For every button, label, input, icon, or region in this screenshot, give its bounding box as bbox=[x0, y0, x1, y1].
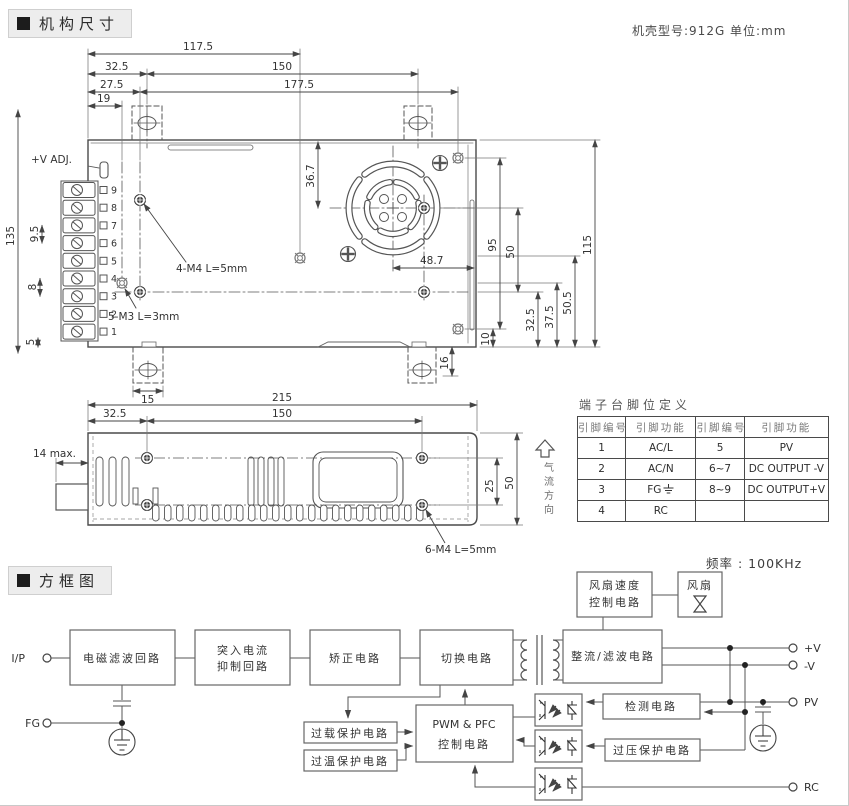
table-header-row: 引脚编号 引脚功能 引脚编号 引脚功能 bbox=[578, 417, 829, 438]
section-header-mechanical: 机构尺寸 bbox=[8, 9, 132, 38]
pin-label: 6 bbox=[111, 239, 117, 250]
block-label-overtemp: 过温保护电路 bbox=[311, 754, 389, 768]
pin-label: 4 bbox=[111, 274, 117, 285]
dim: 32.5 bbox=[103, 408, 126, 420]
col-header: 引脚功能 bbox=[626, 417, 696, 438]
col-header: 引脚编号 bbox=[696, 417, 744, 438]
cell-func: DC OUTPUT+V bbox=[744, 480, 828, 501]
dim: 27.5 bbox=[100, 79, 123, 91]
cell-func: AC/L bbox=[626, 438, 696, 459]
cell-func: RC bbox=[626, 501, 696, 522]
dim: 36.7 bbox=[305, 164, 317, 187]
dim: 16 bbox=[439, 356, 451, 370]
block-label-pwm2: 控制电路 bbox=[438, 737, 490, 751]
cell-pin: 2 bbox=[578, 459, 626, 480]
block-label-rectify: 矫正电路 bbox=[329, 652, 381, 665]
dim: 135 bbox=[5, 226, 17, 246]
block-label-fanspeed: 风扇速度 bbox=[589, 578, 641, 592]
top-view-drawing: 9 8 7 6 5 4 3 2 1 +V ADJ. 4-M4 L=5mm 5-M… bbox=[5, 41, 600, 406]
cell-func-fg: FG bbox=[626, 480, 696, 501]
dim: 50 bbox=[504, 476, 516, 489]
dim: 48.7 bbox=[420, 255, 443, 267]
cell-pin: 4 bbox=[578, 501, 626, 522]
dim: 150 bbox=[272, 61, 292, 73]
terminal-vminus: -V bbox=[804, 660, 815, 673]
section-header-block-diagram: 方框图 bbox=[8, 566, 112, 595]
dim: 25 bbox=[484, 479, 496, 492]
pin-label: 9 bbox=[111, 186, 117, 197]
earth-ground-icon bbox=[663, 484, 674, 494]
block-label-pwm: PWM & PFC bbox=[432, 718, 496, 731]
dim: 50.5 bbox=[562, 291, 574, 314]
block-label-fan: 风扇 bbox=[687, 578, 713, 592]
dim: 5 bbox=[25, 339, 37, 346]
dim: 150 bbox=[272, 408, 292, 420]
m3-callout: 5-M3 L=3mm bbox=[108, 311, 179, 323]
dim: 15 bbox=[141, 394, 154, 406]
cell-pin bbox=[696, 501, 744, 522]
block-label-overload: 过载保护电路 bbox=[311, 726, 389, 740]
cell-func: PV bbox=[744, 438, 828, 459]
block-label-inrush2: 抑制回路 bbox=[217, 659, 269, 673]
cell-func bbox=[744, 501, 828, 522]
block-label-inrush: 突入电流 bbox=[217, 643, 269, 657]
terminal-ip: I/P bbox=[11, 652, 25, 665]
block-label-detect: 检测电路 bbox=[625, 699, 677, 713]
dim: 117.5 bbox=[183, 41, 213, 53]
dim: 9.5 bbox=[29, 226, 41, 243]
cell-pin: 1 bbox=[578, 438, 626, 459]
section-marker-icon bbox=[17, 574, 30, 587]
pin-label: 7 bbox=[111, 221, 117, 232]
m4-side-callout: 6-M4 L=5mm bbox=[425, 544, 496, 556]
block-diagram: 电磁滤波回路 突入电流 抑制回路 矫正电路 切换电路 整流/滤波电路 风扇速度 … bbox=[11, 572, 821, 800]
section-title: 机构尺寸 bbox=[39, 13, 119, 34]
side-view-drawing: 6-M4 L=5mm 215 bbox=[33, 392, 523, 556]
pin-table-title: 端子台脚位定义 bbox=[579, 396, 829, 413]
table-row: 2 AC/N 6~7 DC OUTPUT -V bbox=[578, 459, 829, 480]
block-label-emi: 电磁滤波回路 bbox=[83, 652, 161, 665]
dim: 32.5 bbox=[525, 308, 537, 331]
vadj-label: +V ADJ. bbox=[31, 154, 72, 166]
airflow-char: 方 bbox=[534, 490, 564, 504]
block-label-overvolt: 过压保护电路 bbox=[613, 743, 691, 757]
terminal-vplus: +V bbox=[804, 642, 821, 655]
dim: 177.5 bbox=[284, 79, 314, 91]
dim: 215 bbox=[272, 392, 292, 404]
datasheet-page: 9 8 7 6 5 4 3 2 1 +V ADJ. 4-M4 L=5mm 5-M… bbox=[0, 0, 849, 806]
block-label-switch: 切换电路 bbox=[441, 651, 493, 665]
cell-func: DC OUTPUT -V bbox=[744, 459, 828, 480]
case-model-note: 机壳型号:912G 单位:mm bbox=[632, 22, 786, 39]
pin-label: 5 bbox=[111, 256, 117, 267]
dim: 10 bbox=[480, 332, 492, 345]
cell-pin: 5 bbox=[696, 438, 744, 459]
m4-callout: 4-M4 L=5mm bbox=[176, 263, 247, 275]
col-header: 引脚功能 bbox=[744, 417, 828, 438]
frequency-note: 频率 : 100KHz bbox=[706, 553, 802, 572]
dim: 19 bbox=[97, 93, 110, 105]
dim: 14 max. bbox=[33, 448, 76, 460]
dim: 50 bbox=[505, 245, 517, 258]
terminal-pv: PV bbox=[804, 696, 819, 709]
dim: 115 bbox=[582, 235, 594, 255]
pin-label: 3 bbox=[111, 292, 117, 303]
pin-definition-table: 端子台脚位定义 引脚编号 引脚功能 引脚编号 引脚功能 1 AC/L 5 PV … bbox=[577, 396, 829, 522]
phillips-screw bbox=[341, 247, 356, 262]
terminal-rc: RC bbox=[804, 781, 819, 794]
table-row: 4 RC bbox=[578, 501, 829, 522]
col-header: 引脚编号 bbox=[578, 417, 626, 438]
pin-label: 1 bbox=[111, 327, 117, 338]
airflow-char: 向 bbox=[534, 504, 564, 518]
block-label-fanspeed2: 控制电路 bbox=[589, 595, 641, 609]
dim: 8 bbox=[27, 284, 39, 291]
cell-pin: 8~9 bbox=[696, 480, 744, 501]
pin-label: 8 bbox=[111, 203, 117, 214]
cell-pin: 3 bbox=[578, 480, 626, 501]
phillips-screw bbox=[433, 156, 448, 171]
airflow-char: 气 bbox=[534, 462, 564, 476]
airflow-direction-label: 气 流 方 向 bbox=[534, 438, 564, 518]
terminal-fg: FG bbox=[25, 717, 40, 730]
table-row: 3 FG 8~9 DC OUTPUT+V bbox=[578, 480, 829, 501]
dim: 95 bbox=[487, 238, 499, 251]
table-row: 1 AC/L 5 PV bbox=[578, 438, 829, 459]
fg-text: FG bbox=[647, 484, 661, 496]
section-title: 方框图 bbox=[39, 570, 99, 591]
airflow-char: 流 bbox=[534, 476, 564, 490]
section-marker-icon bbox=[17, 17, 30, 30]
dim: 37.5 bbox=[544, 305, 556, 328]
dim: 32.5 bbox=[105, 61, 128, 73]
cell-pin: 6~7 bbox=[696, 459, 744, 480]
cell-func: AC/N bbox=[626, 459, 696, 480]
block-label-outfilter: 整流/滤波电路 bbox=[571, 649, 655, 663]
